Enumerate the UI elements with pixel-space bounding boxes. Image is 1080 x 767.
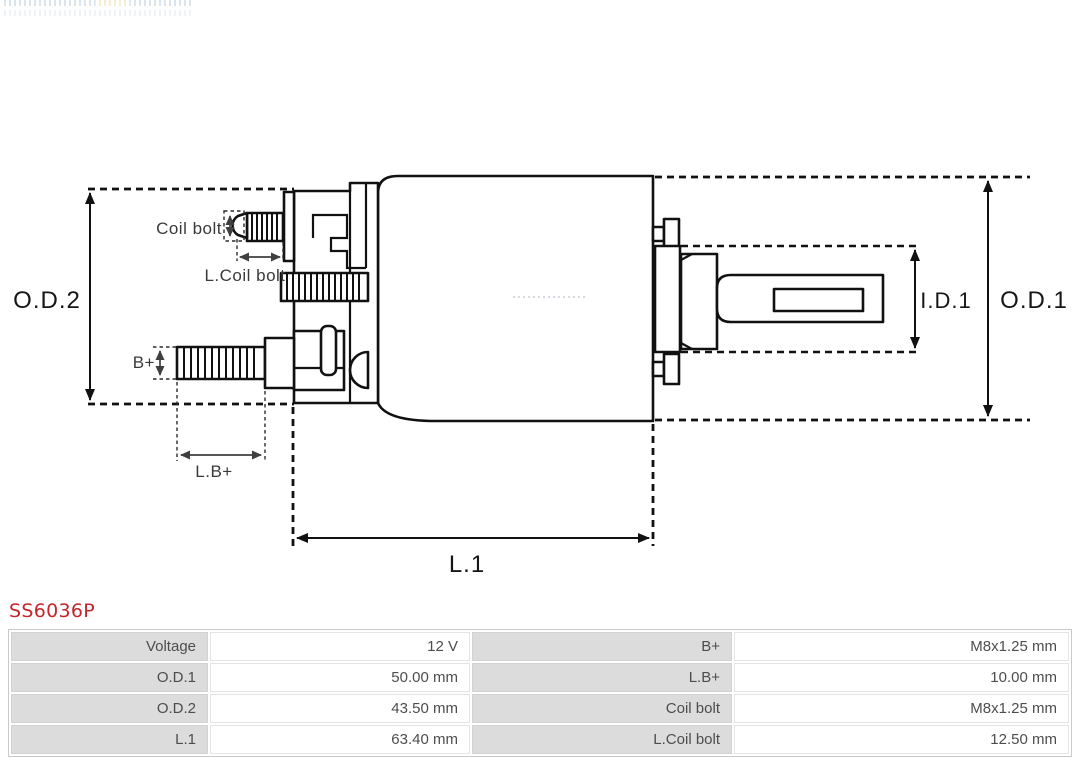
spec-value-cell: 63.40 mm [210, 725, 470, 754]
dimension-l-b-plus: L.B+ [177, 382, 265, 481]
spec-value-cell: 12 V [210, 632, 470, 661]
rear-terminal-bottom [653, 354, 679, 384]
dimension-l1: L.1 [293, 407, 653, 578]
b-plus-bolt [177, 338, 294, 388]
dimension-b-plus: B+ [133, 347, 177, 379]
spec-value-cell: 43.50 mm [210, 694, 470, 723]
dimension-l-coil-bolt: L.Coil bolt [204, 239, 285, 285]
spec-label-cell: O.D.2 [11, 694, 208, 723]
l1-label: L.1 [449, 551, 485, 578]
spec-label-cell: B+ [472, 632, 732, 661]
part-number-title: SS6036P [9, 600, 95, 622]
spec-label-cell: Voltage [11, 632, 208, 661]
id1-label: I.D.1 [920, 288, 971, 313]
coil-thread-bushing [281, 273, 368, 301]
plunger-slot [774, 289, 863, 311]
spec-value-cell: M8x1.25 mm [734, 632, 1069, 661]
spec-label-cell: L.B+ [472, 663, 732, 692]
page: O.D.2 O.D.1 I.D.1 L.1 Coil bolt [0, 0, 1080, 767]
solenoid-body [378, 176, 653, 421]
spec-label-cell: L.1 [11, 725, 208, 754]
b-plus-label: B+ [133, 353, 155, 372]
spec-value-cell: M8x1.25 mm [734, 694, 1069, 723]
l-coil-bolt-label: L.Coil bolt [204, 266, 285, 285]
spec-label-cell: O.D.1 [11, 663, 208, 692]
spec-value-cell: 12.50 mm [734, 725, 1069, 754]
dimension-coil-bolt: Coil bolt [156, 211, 244, 241]
od2-label: O.D.2 [13, 287, 81, 314]
spec-table: Voltage 12 V B+ M8x1.25 mm O.D.1 50.00 m… [8, 629, 1072, 757]
od1-label: O.D.1 [1000, 287, 1068, 314]
solenoid-cap [281, 183, 378, 403]
l-b-plus-label: L.B+ [195, 462, 232, 481]
spec-value-cell: 50.00 mm [210, 663, 470, 692]
solenoid-diagram: O.D.2 O.D.1 I.D.1 L.1 Coil bolt [0, 0, 1080, 595]
spec-label-cell: Coil bolt [472, 694, 732, 723]
plunger-assembly [655, 246, 883, 352]
rear-terminal-top [653, 219, 679, 249]
coil-bolt-label: Coil bolt [156, 219, 222, 238]
coil-bolt [233, 213, 283, 241]
spec-label-cell: L.Coil bolt [472, 725, 732, 754]
spec-value-cell: 10.00 mm [734, 663, 1069, 692]
